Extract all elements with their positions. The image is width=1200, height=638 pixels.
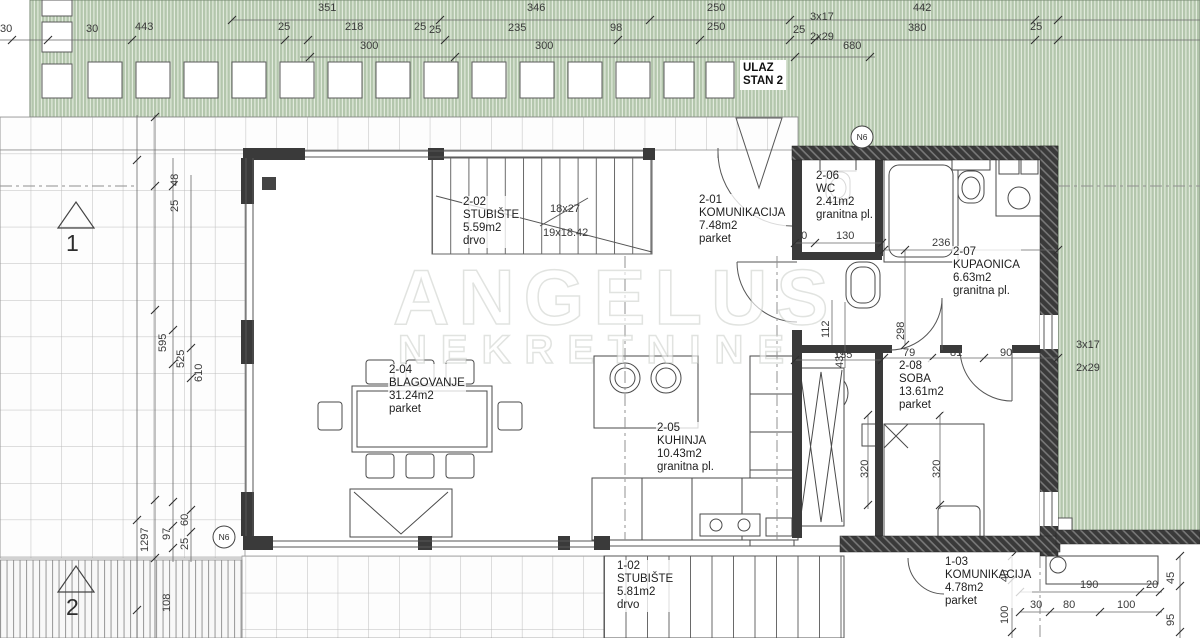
dim-b190: 190 <box>1080 580 1098 591</box>
dim-l525: 525 <box>176 350 187 368</box>
entrance-line2: STAN 2 <box>743 75 783 88</box>
room-label-2-05: 2-05KUHINJA 10.43m2granitna pl. <box>656 422 715 474</box>
node-label-top: N6 <box>857 132 868 142</box>
sideboard <box>350 489 452 537</box>
dim-b45: 45 <box>1166 572 1177 584</box>
dim-t218: 218 <box>345 22 363 33</box>
room-label-2-06: 2-06WC 2.41m2granitna pl. <box>815 170 874 222</box>
room-label-2-04: 2-04BLAGOVANJE 31.24m2parket <box>388 364 466 416</box>
dim-i320b: 320 <box>932 460 943 478</box>
section-marker-2: 2 <box>66 594 79 621</box>
dim-i298: 298 <box>896 322 907 340</box>
dim-i320a: 320 <box>860 460 871 478</box>
dim-t250a: 250 <box>707 3 725 14</box>
dim-t25d: 25 <box>793 25 805 36</box>
stair-note-green-3x17: 3x17 <box>1076 340 1100 351</box>
wall-box <box>262 177 276 190</box>
dim-t235: 235 <box>508 23 526 34</box>
dim-t380: 380 <box>908 23 926 34</box>
dim-t443: 443 <box>135 22 153 33</box>
dim-t25b: 25 <box>414 22 426 33</box>
dim-l610: 610 <box>194 364 205 382</box>
terrace-tiles-left <box>0 150 245 558</box>
hall-counter <box>1046 556 1158 584</box>
stair-note-18x27: 18x27 <box>550 204 580 215</box>
terrace-tiles-top <box>0 117 798 150</box>
dim-b100b: 100 <box>1117 600 1135 611</box>
dim-t351: 351 <box>318 3 336 14</box>
dim-t300b: 300 <box>535 41 553 52</box>
stair-note-top-2x29: 2x29 <box>810 32 834 43</box>
section-marker-1: 1 <box>66 230 79 257</box>
dim-t30a: 30 <box>0 24 12 35</box>
stair-note-19x18: 19x18.42 <box>543 228 588 239</box>
dim-l595: 595 <box>158 334 169 352</box>
entrance-label: ULAZ STAN 2 <box>740 60 786 90</box>
dim-b30: 30 <box>1030 600 1042 611</box>
room-label-2-08: 2-08SOBA 13.61m2parket <box>898 360 945 412</box>
dim-l48: 48 <box>170 174 181 186</box>
stair-note-top-3x17: 3x17 <box>810 12 834 23</box>
wc-sink <box>846 262 880 308</box>
dim-l25: 25 <box>170 200 181 212</box>
dim-b100a: 100 <box>1000 606 1011 624</box>
node-label-left: N6 <box>219 532 230 542</box>
dim-l60: 60 <box>180 514 191 526</box>
dim-t30b: 30 <box>86 24 98 35</box>
floor-plan: ANGELUS NEKRETNINE ULAZ STAN 2 2-02STUBI… <box>0 0 1200 638</box>
bath-vanity <box>996 156 1042 216</box>
room-label-1-03: 1-03KOMUNIKACIJA 4.78m2parket <box>944 556 1032 608</box>
dim-i90: 90 <box>1000 348 1012 359</box>
dim-t680: 680 <box>843 41 861 52</box>
dim-i20: 20 <box>795 231 807 242</box>
dim-t250b: 250 <box>707 22 725 33</box>
deck-boards <box>0 560 242 638</box>
dim-t346: 346 <box>527 3 545 14</box>
entrance-line1: ULAZ <box>743 62 783 75</box>
dim-l97: 97 <box>162 528 173 540</box>
room-label-2-07: 2-07KUPAONICA 6.63m2granitna pl. <box>952 246 1021 298</box>
dim-b20: 20 <box>1146 580 1158 591</box>
stair-note-green-2x29: 2x29 <box>1076 363 1100 374</box>
dim-b40: 40 <box>1000 570 1011 582</box>
dim-l108: 108 <box>162 594 173 612</box>
dim-b95: 95 <box>1166 614 1177 626</box>
room-label-2-02: 2-02STUBIŠTE 5.59m2drvo <box>462 196 520 248</box>
room-label-2-01: 2-01KOMUNIKACIJA 7.48m2parket <box>698 194 786 246</box>
dim-t442: 442 <box>913 3 931 14</box>
dim-l25b: 25 <box>180 538 191 550</box>
dim-t98: 98 <box>610 23 622 34</box>
dim-t25a: 25 <box>278 22 290 33</box>
dim-t300a: 300 <box>360 41 378 52</box>
dim-t25c: 25 <box>429 25 441 36</box>
dim-i79: 79 <box>903 348 915 359</box>
dim-l1297: 1297 <box>140 528 151 552</box>
dim-i130: 130 <box>836 231 854 242</box>
room-label-1-02: 1-02STUBIŠTE 5.81m2drvo <box>616 560 674 612</box>
wardrobe <box>798 368 844 526</box>
dim-i135: 135 <box>834 350 852 361</box>
dim-b80: 80 <box>1063 600 1075 611</box>
dim-i81: 81 <box>950 348 962 359</box>
dim-i112: 112 <box>821 320 832 338</box>
dim-i236: 236 <box>932 238 950 249</box>
dim-t25e: 25 <box>1030 22 1042 33</box>
terrace-tiles-bottom <box>242 556 604 638</box>
